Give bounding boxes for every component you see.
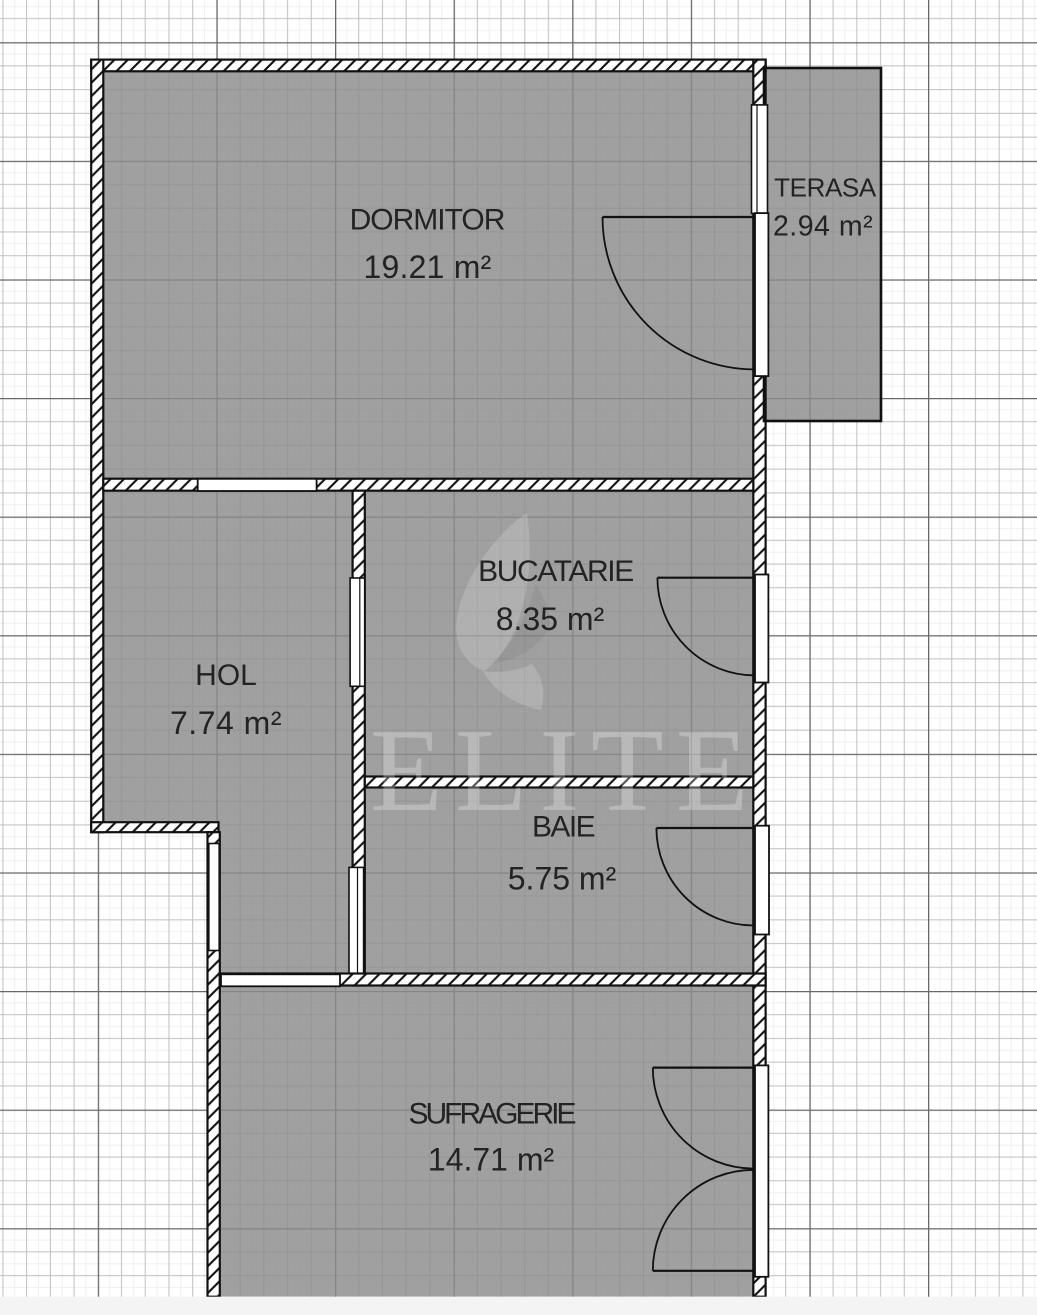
svg-text:BAIE: BAIE (532, 811, 595, 844)
svg-text:DORMITOR: DORMITOR (350, 204, 505, 237)
svg-text:5.75 m²: 5.75 m² (508, 861, 617, 897)
svg-text:14.71 m²: 14.71 m² (428, 1142, 555, 1178)
svg-text:8.35 m²: 8.35 m² (496, 601, 605, 637)
svg-text:SUFRAGERIE: SUFRAGERIE (408, 1098, 575, 1131)
svg-text:19.21 m²: 19.21 m² (364, 249, 492, 285)
svg-text:HOL: HOL (195, 659, 257, 692)
svg-text:TERASA: TERASA (774, 173, 877, 203)
svg-text:7.74 m²: 7.74 m² (170, 705, 282, 741)
svg-text:2.94 m²: 2.94 m² (773, 211, 873, 243)
svg-text:BUCATARIE: BUCATARIE (478, 555, 633, 588)
